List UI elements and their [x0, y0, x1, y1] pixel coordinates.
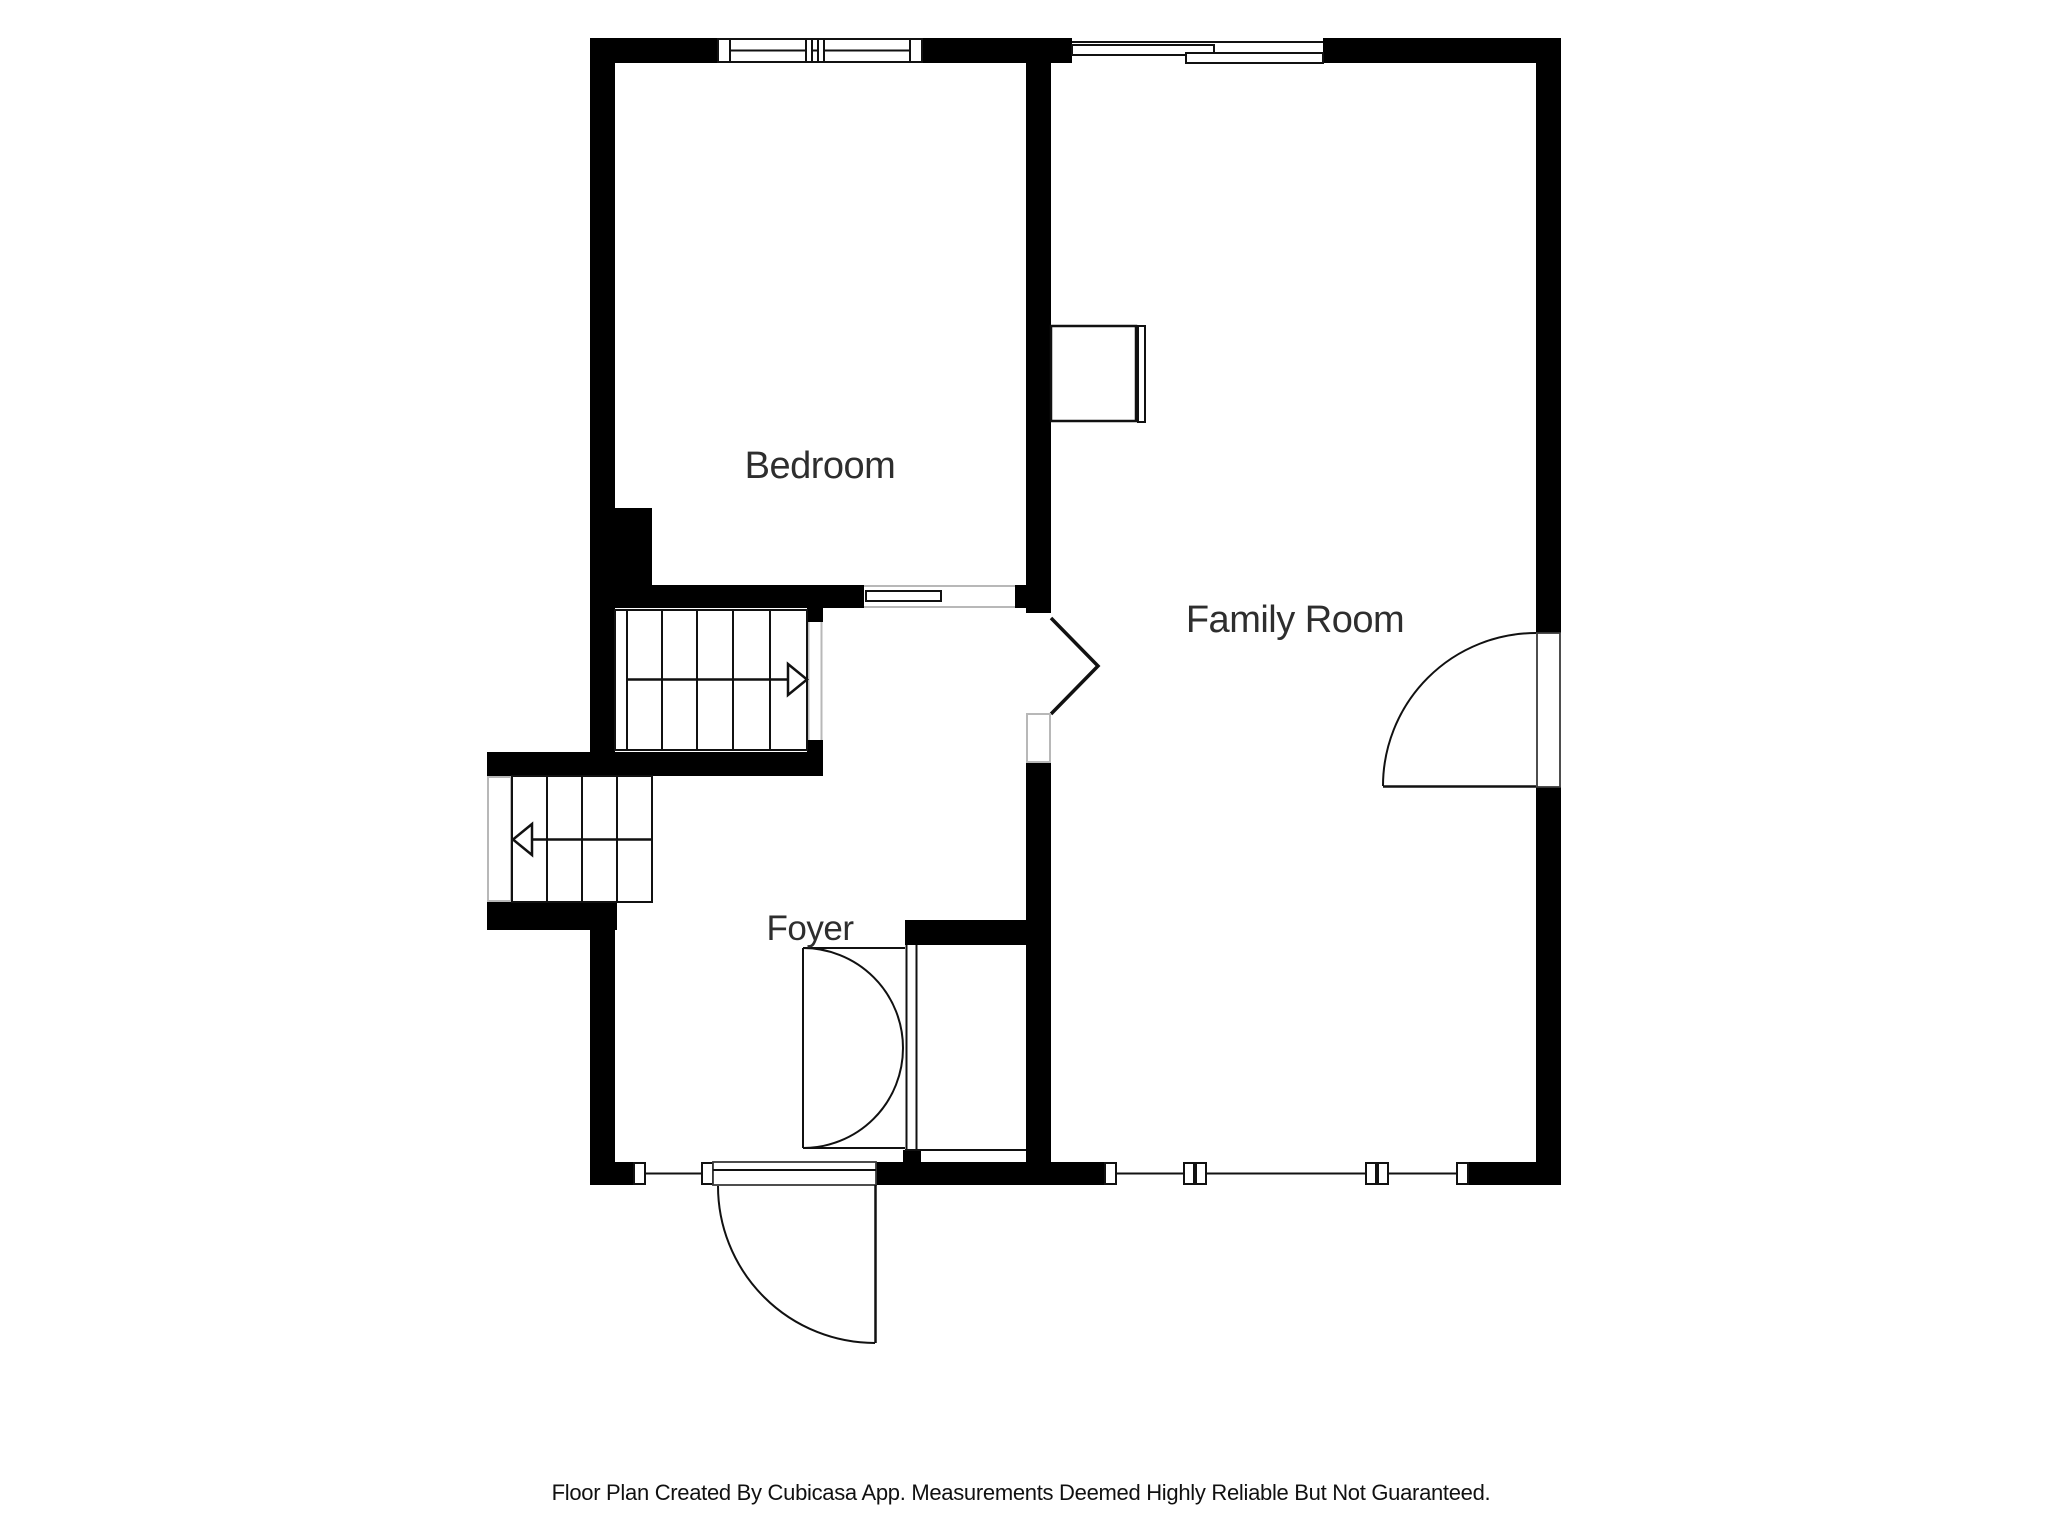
footer-disclaimer: Floor Plan Created By Cubicasa App. Meas…: [552, 1480, 1491, 1505]
room-label-foyer: Foyer: [767, 909, 855, 948]
bedroom-window: [718, 38, 922, 63]
bedroom-pocket-door-opening: [864, 585, 1015, 608]
stairs-down-arrowhead: [513, 824, 532, 855]
closet: [905, 945, 1026, 1150]
foyer-window: [634, 1162, 713, 1185]
closet-double-doors: [803, 948, 905, 1148]
entry-door: [713, 1162, 876, 1343]
staircase-down: [512, 776, 652, 902]
room-label-bedroom: Bedroom: [745, 445, 896, 487]
fireplace-fixture: [1051, 326, 1145, 422]
floor-plan-drawing: Bedroom Family Room Foyer Floor Plan Cre…: [0, 0, 2048, 1536]
room-label-family-room: Family Room: [1186, 599, 1404, 641]
family-room-door: [1383, 633, 1560, 787]
family-room-windows: [1105, 1162, 1468, 1185]
floor-plan-page: Bedroom Family Room Foyer Floor Plan Cre…: [0, 0, 2048, 1536]
staircase-up: [615, 610, 807, 750]
sliding-door-top: [1072, 39, 1323, 63]
stairs-up-arrowhead: [788, 664, 807, 695]
stair-hall-opening: [807, 622, 823, 740]
stair-bay-window: [488, 777, 511, 901]
hall-family-door-chevron: [1027, 618, 1098, 762]
